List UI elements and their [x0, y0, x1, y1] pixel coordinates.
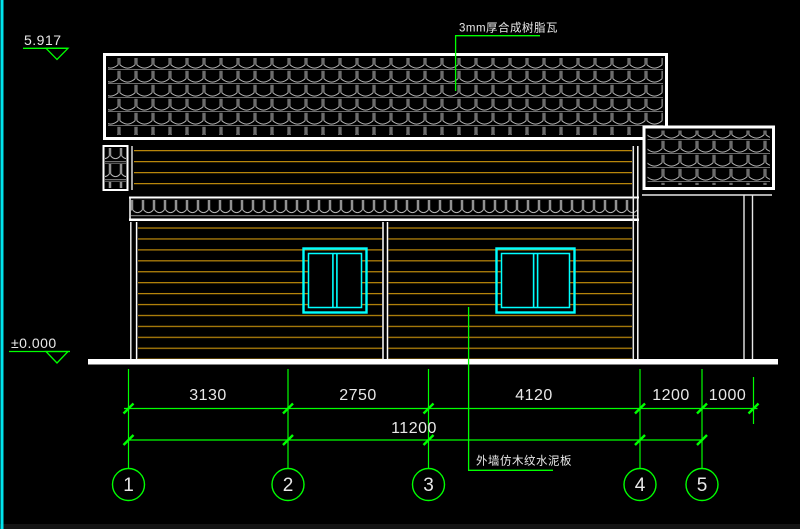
- window-1: [304, 249, 367, 313]
- dimension-segment-5: 1000: [709, 387, 747, 404]
- grid-bubble-5-label: 5: [697, 475, 708, 496]
- ground-elevation-value: ±0.000: [11, 335, 57, 351]
- porch-roof: [644, 127, 774, 189]
- ground-line: [88, 359, 778, 365]
- roof-elevation-marker: [23, 48, 68, 59]
- grid-bubble-4-label: 4: [635, 475, 646, 496]
- dimension-segment-2: 2750: [339, 387, 377, 404]
- wall-material-annotation: 外墙仿木纹水泥板: [476, 454, 572, 468]
- grid-bubble-2-label: 2: [283, 475, 294, 496]
- dimension-segment-3: 4120: [515, 387, 553, 404]
- gable-siding-band: [132, 146, 632, 190]
- window-2: [497, 249, 575, 313]
- roof-material-annotation: 3mm厚合成树脂瓦: [459, 21, 558, 35]
- ground-elevation-marker: [9, 352, 70, 364]
- wall-divider: [382, 222, 388, 359]
- right-corner-board: [633, 146, 638, 359]
- left-corner-board: [131, 222, 137, 359]
- drawing-surface: 5.917 ±0.000 3mm厚合成树脂瓦 外墙仿木纹水泥板 3130 275…: [0, 0, 800, 529]
- grid-bubble-1-label: 1: [123, 475, 134, 496]
- cad-elevation-drawing: 5.917 ±0.000 3mm厚合成树脂瓦 外墙仿木纹水泥板 3130 275…: [0, 0, 800, 529]
- grid-bubbles: [113, 469, 719, 501]
- main-roof-tile-hatch: [108, 58, 663, 135]
- grid-bubble-3-label: 3: [423, 475, 434, 496]
- dimension-linework: [124, 369, 759, 468]
- overall-dimension-value: 11200: [391, 420, 437, 437]
- viewport-bottom-strip: [0, 524, 800, 529]
- dimension-segment-4: 1200: [652, 387, 690, 404]
- porch-structure: [642, 195, 772, 359]
- eave-fascia-band: [129, 197, 639, 222]
- main-roof: [105, 55, 667, 139]
- porch-roof-tile-hatch: [648, 131, 771, 186]
- roof-elevation-value: 5.917: [24, 32, 62, 48]
- left-eave-tile-block: [104, 146, 128, 190]
- dimension-segment-1: 3130: [189, 387, 227, 404]
